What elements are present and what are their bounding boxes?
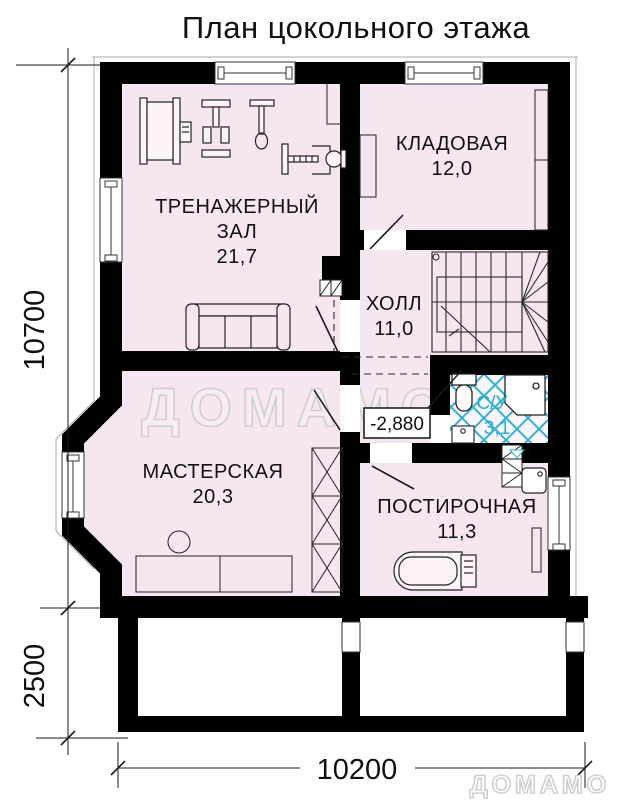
elevation-value: -2,880 [370,414,424,435]
gym-name-line1: ТРЕНАЖЕРНЫЙ [155,194,319,218]
laundry-area: 11,3 [437,521,476,543]
bathroom-area: 3,1 [484,418,510,439]
gym-area: 21,7 [217,246,258,268]
dimension-height-basement: 2500 [19,644,51,709]
window-icon [62,452,84,518]
workshop-area: 20,3 [193,486,234,508]
floor-plan-page: План цокольного этажа ДОМАМО [0,0,618,800]
window-icon [215,62,295,84]
storage-area: 12,0 [432,158,473,180]
bathtub-icon [394,552,476,590]
bathroom-name: С/У [476,393,508,414]
window-icon [548,477,570,550]
sofa [186,304,290,350]
window-icon [100,178,122,262]
window-icon [405,62,483,84]
hall-area: 11,0 [374,318,413,340]
floor-plan-svg: План цокольного этажа ДОМАМО [0,0,618,800]
storage-name: КЛАДОВАЯ [396,133,508,155]
hall-name: ХОЛЛ [366,293,422,315]
shower-tray-icon [505,375,545,415]
washbasin-icon [452,426,474,443]
watermark-corner: ДОМАМО [470,771,610,799]
dimension-height-total: 10700 [19,290,51,371]
workshop-name: МАСТЕРСКАЯ [143,461,284,483]
page-title: План цокольного этажа [182,10,531,45]
foundation-openings [342,622,584,652]
dimension-width-total: 10200 [317,754,398,786]
gym-name-line2: ЗАЛ [217,221,257,243]
laundry-name: ПОСТИРОЧНАЯ [377,496,536,518]
